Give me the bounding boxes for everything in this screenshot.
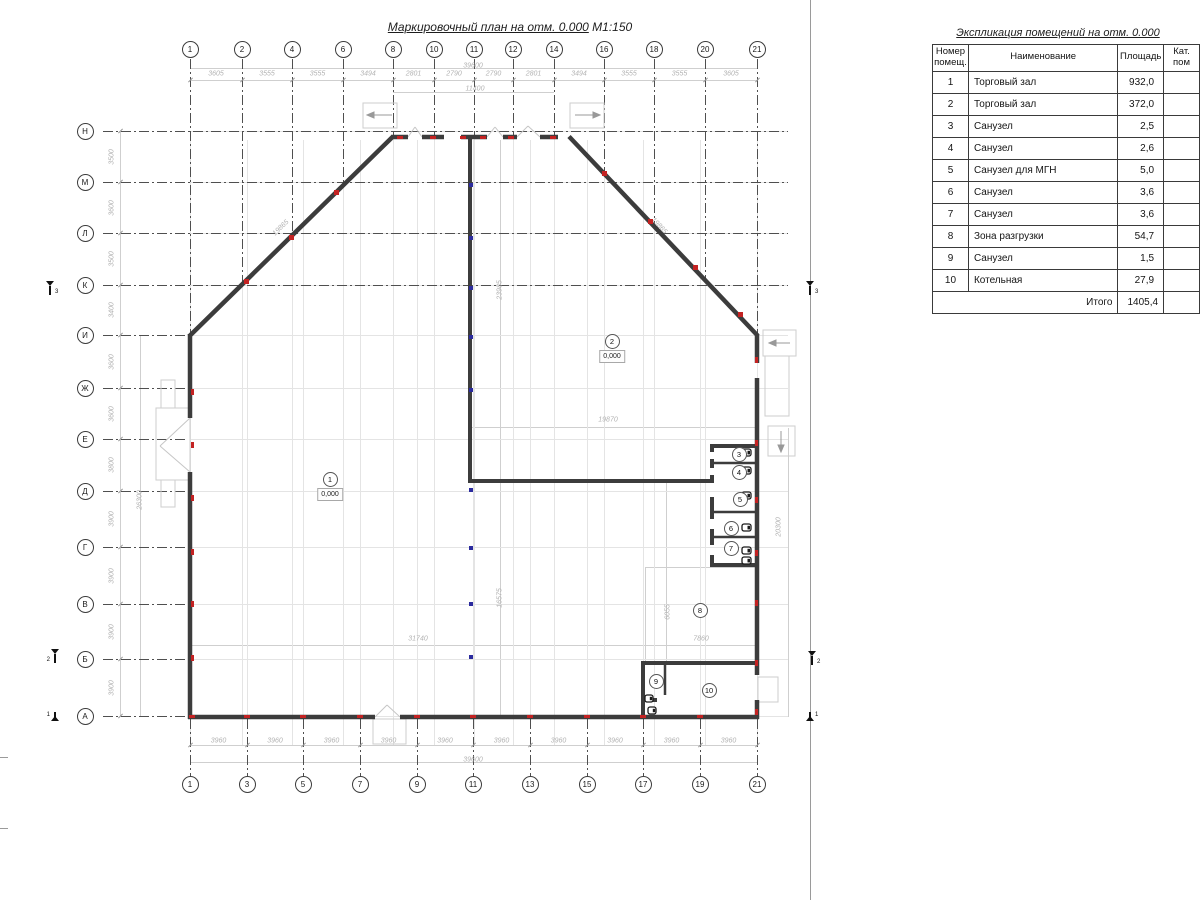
section-marker-flag bbox=[806, 716, 814, 721]
column-marker bbox=[469, 388, 473, 392]
section-marker: 1 bbox=[804, 708, 816, 722]
drawing-sheet: Маркировочный план на отм. 0.000 М1:150 … bbox=[0, 0, 1200, 900]
section-marker-flag bbox=[51, 716, 59, 721]
wall-marker bbox=[480, 136, 486, 139]
column-marker bbox=[469, 655, 473, 659]
wall-marker bbox=[640, 715, 646, 718]
section-marker-number: 2 bbox=[817, 659, 820, 665]
room-number-tag: 8 bbox=[693, 603, 708, 618]
column-marker bbox=[469, 236, 473, 240]
level-mark: 0,000 bbox=[599, 350, 625, 363]
section-marker-flag bbox=[806, 281, 814, 286]
wall-marker bbox=[191, 601, 194, 607]
room-number-tag: 6 bbox=[724, 521, 739, 536]
wall-marker bbox=[508, 136, 514, 139]
toilet-fixtures bbox=[645, 449, 751, 714]
wall-marker bbox=[191, 442, 194, 448]
interior-walls bbox=[468, 135, 757, 717]
wall-marker bbox=[755, 440, 758, 446]
column-marker bbox=[469, 488, 473, 492]
wall-marker bbox=[648, 219, 653, 224]
wall-marker bbox=[357, 715, 363, 718]
section-marker-stem bbox=[811, 656, 813, 665]
section-marker-stem bbox=[809, 286, 811, 295]
column-marker bbox=[469, 546, 473, 550]
section-marker: 1 bbox=[49, 708, 61, 722]
wall-marker bbox=[602, 171, 607, 176]
column-marker bbox=[469, 286, 473, 290]
wall-marker bbox=[430, 136, 436, 139]
wall-marker bbox=[191, 495, 194, 501]
room-number-tag: 5 bbox=[733, 492, 748, 507]
section-marker-flag bbox=[51, 649, 59, 654]
section-marker-number: 3 bbox=[815, 289, 818, 295]
section-marker: 2 bbox=[49, 653, 61, 667]
section-marker-number: 1 bbox=[47, 712, 50, 718]
porch-outlines bbox=[156, 103, 796, 744]
section-marker-flag bbox=[808, 651, 816, 656]
section-marker: 3 bbox=[804, 285, 816, 299]
section-marker-number: 2 bbox=[47, 657, 50, 663]
room-number-tag: 4 bbox=[732, 465, 747, 480]
room-number-tag: 2 bbox=[605, 334, 620, 349]
wall-marker bbox=[755, 600, 758, 606]
wall-marker bbox=[191, 655, 194, 661]
wall-marker bbox=[697, 715, 703, 718]
wall-marker bbox=[550, 136, 556, 139]
column-marker bbox=[469, 335, 473, 339]
wall-marker bbox=[189, 715, 195, 718]
wall-marker bbox=[738, 312, 743, 317]
wall-marker bbox=[191, 549, 194, 555]
wall-marker bbox=[289, 235, 294, 240]
room-number-tag: 10 bbox=[702, 683, 717, 698]
column-marker bbox=[469, 183, 473, 187]
section-marker: 3 bbox=[44, 285, 56, 299]
section-marker-stem bbox=[49, 286, 51, 295]
wall-marker bbox=[755, 550, 758, 556]
wall-marker bbox=[334, 190, 339, 195]
wall-marker bbox=[191, 389, 194, 395]
wall-marker bbox=[755, 709, 758, 715]
wall-marker bbox=[397, 136, 403, 139]
wall-marker bbox=[584, 715, 590, 718]
section-marker-flag bbox=[46, 281, 54, 286]
room-number-tag: 1 bbox=[323, 472, 338, 487]
wall-marker bbox=[470, 715, 476, 718]
section-marker-number: 3 bbox=[55, 289, 58, 295]
room-number-tag: 3 bbox=[732, 447, 747, 462]
level-mark: 0,000 bbox=[317, 488, 343, 501]
wall-marker bbox=[414, 715, 420, 718]
plan-geometry bbox=[0, 0, 1200, 900]
exterior-walls bbox=[188, 137, 759, 720]
wall-marker bbox=[755, 357, 758, 363]
wall-marker bbox=[693, 265, 698, 270]
door-marks bbox=[160, 126, 540, 717]
section-marker-number: 1 bbox=[815, 712, 818, 718]
direction-arrows bbox=[367, 112, 790, 452]
wall-marker bbox=[527, 715, 533, 718]
room-number-tag: 9 bbox=[649, 674, 664, 689]
wall-marker bbox=[460, 136, 466, 139]
column-marker bbox=[469, 602, 473, 606]
section-marker-stem bbox=[54, 654, 56, 663]
wall-marker bbox=[244, 279, 249, 284]
wall-marker bbox=[755, 497, 758, 503]
wall-marker bbox=[244, 715, 250, 718]
room-number-tag: 7 bbox=[724, 541, 739, 556]
section-marker: 2 bbox=[806, 655, 818, 669]
wall-marker bbox=[755, 660, 758, 666]
wall-marker bbox=[300, 715, 306, 718]
